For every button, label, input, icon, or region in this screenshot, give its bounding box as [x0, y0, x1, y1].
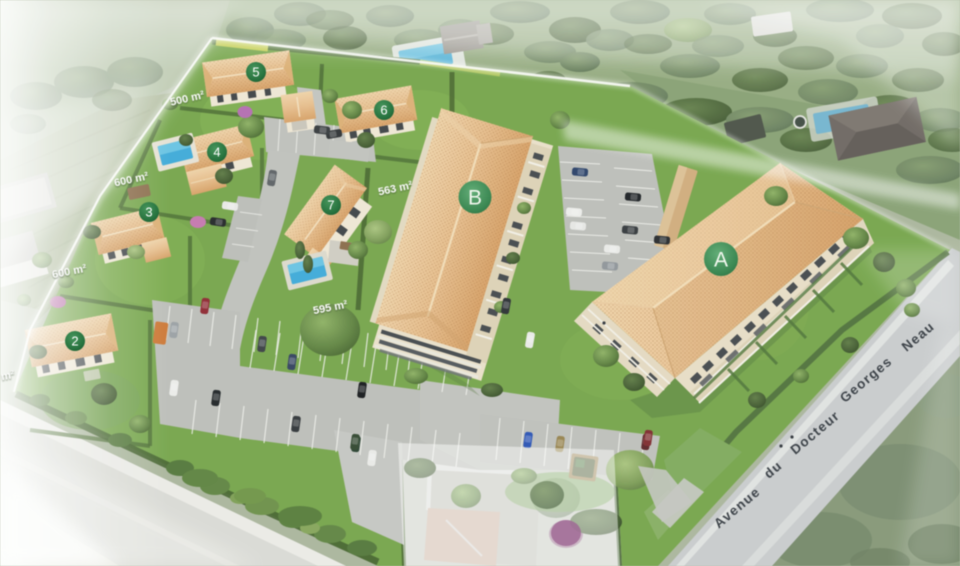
svg-text:2: 2	[71, 334, 78, 349]
svg-text:3: 3	[145, 205, 152, 220]
svg-text:4: 4	[213, 145, 220, 160]
svg-text:7: 7	[327, 198, 334, 213]
svg-text:6: 6	[380, 103, 387, 118]
svg-text:5: 5	[252, 65, 259, 80]
svg-text:A: A	[714, 249, 728, 272]
svg-text:B: B	[468, 187, 482, 210]
